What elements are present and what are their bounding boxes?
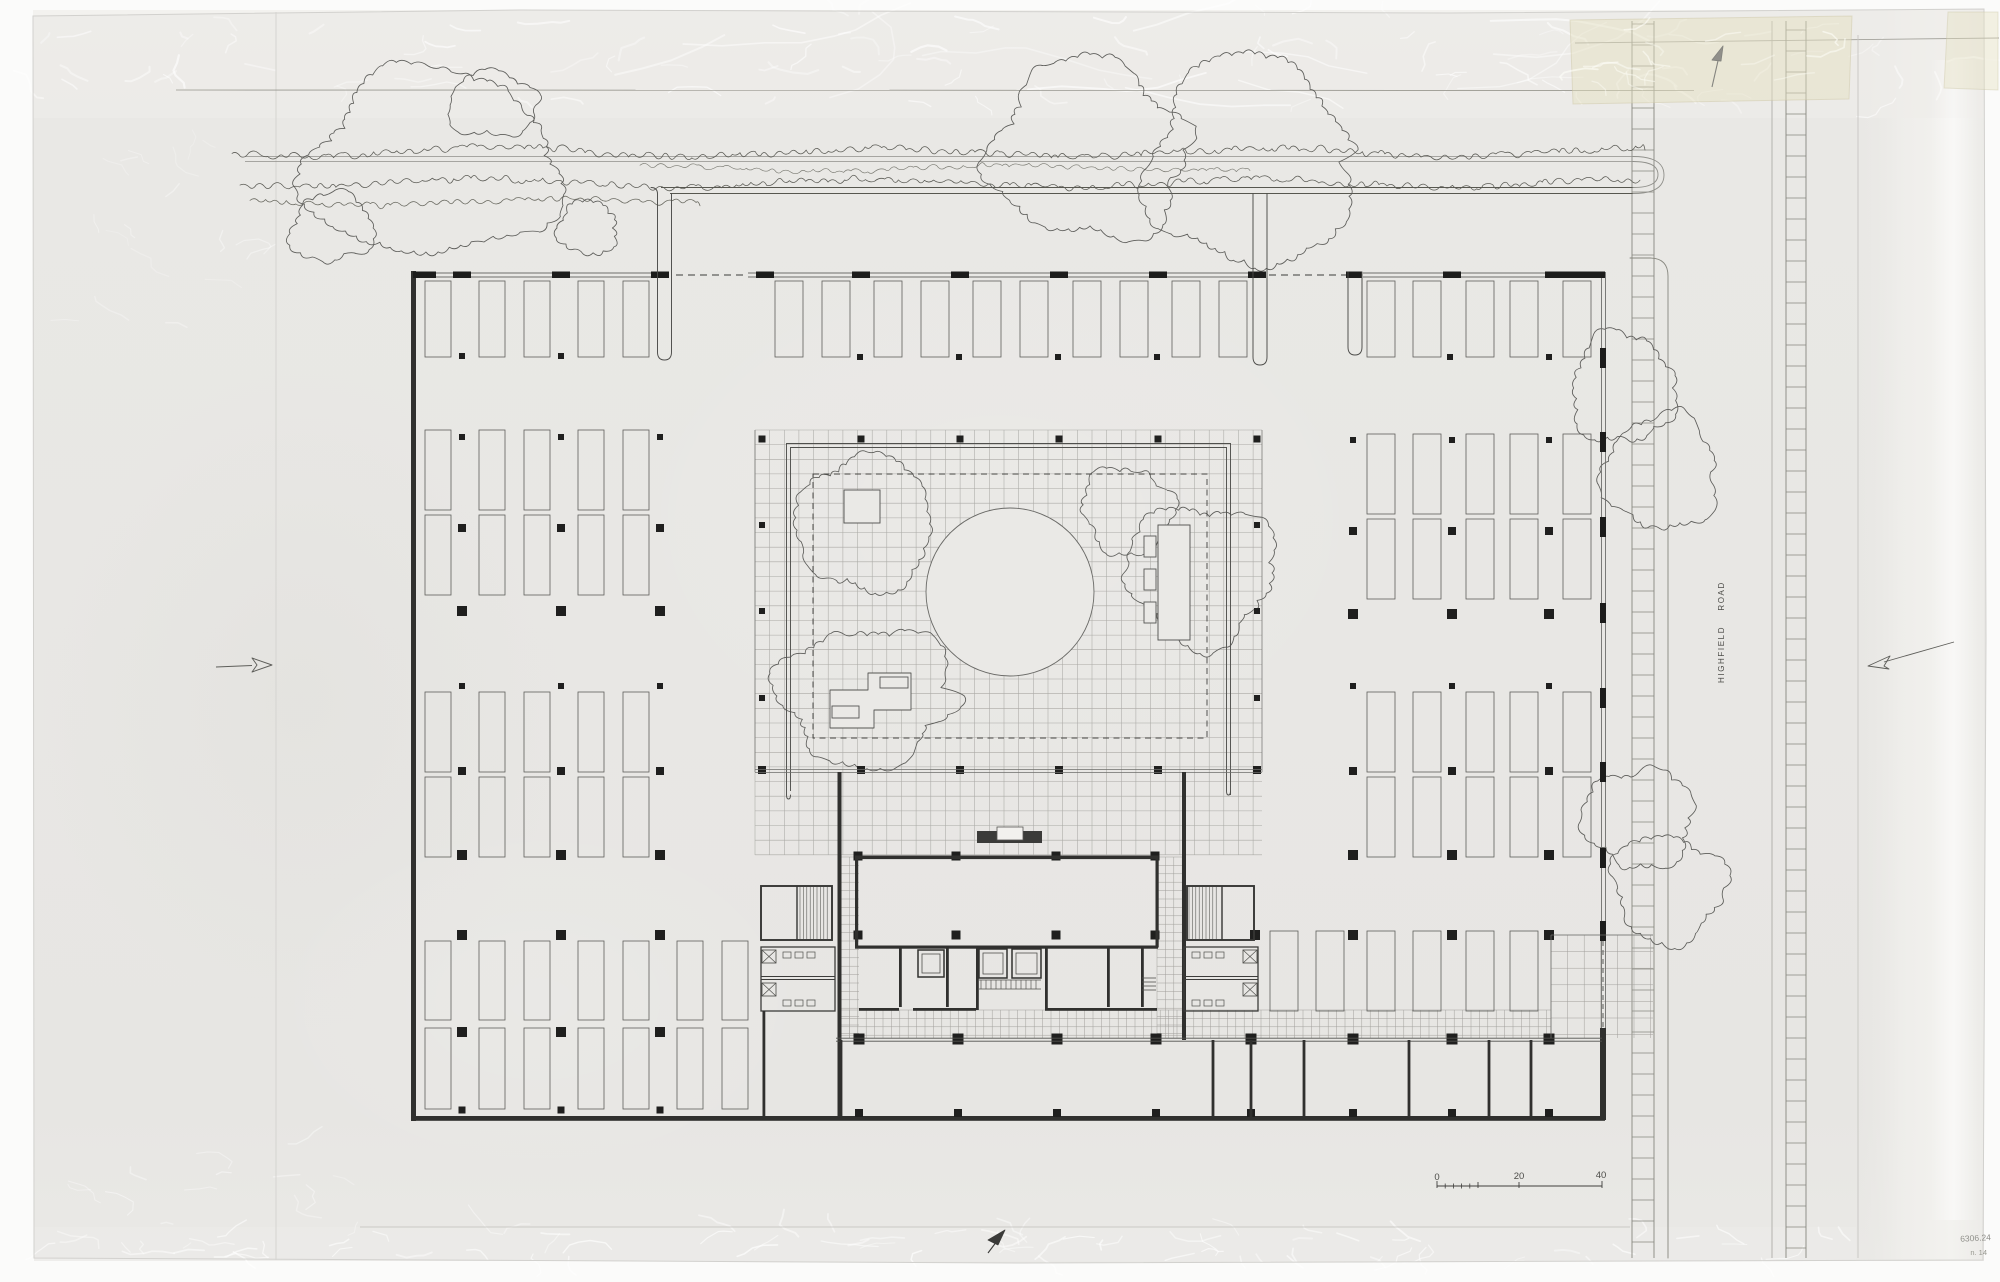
svg-text:20: 20 [1514, 1171, 1525, 1182]
svg-text:40: 40 [1596, 1170, 1607, 1181]
svg-text:HIGHFIELD ROAD: HIGHFIELD ROAD [1717, 581, 1726, 683]
svg-text:n. 14: n. 14 [1970, 1248, 1987, 1257]
svg-text:6306.24: 6306.24 [1960, 1232, 1991, 1244]
